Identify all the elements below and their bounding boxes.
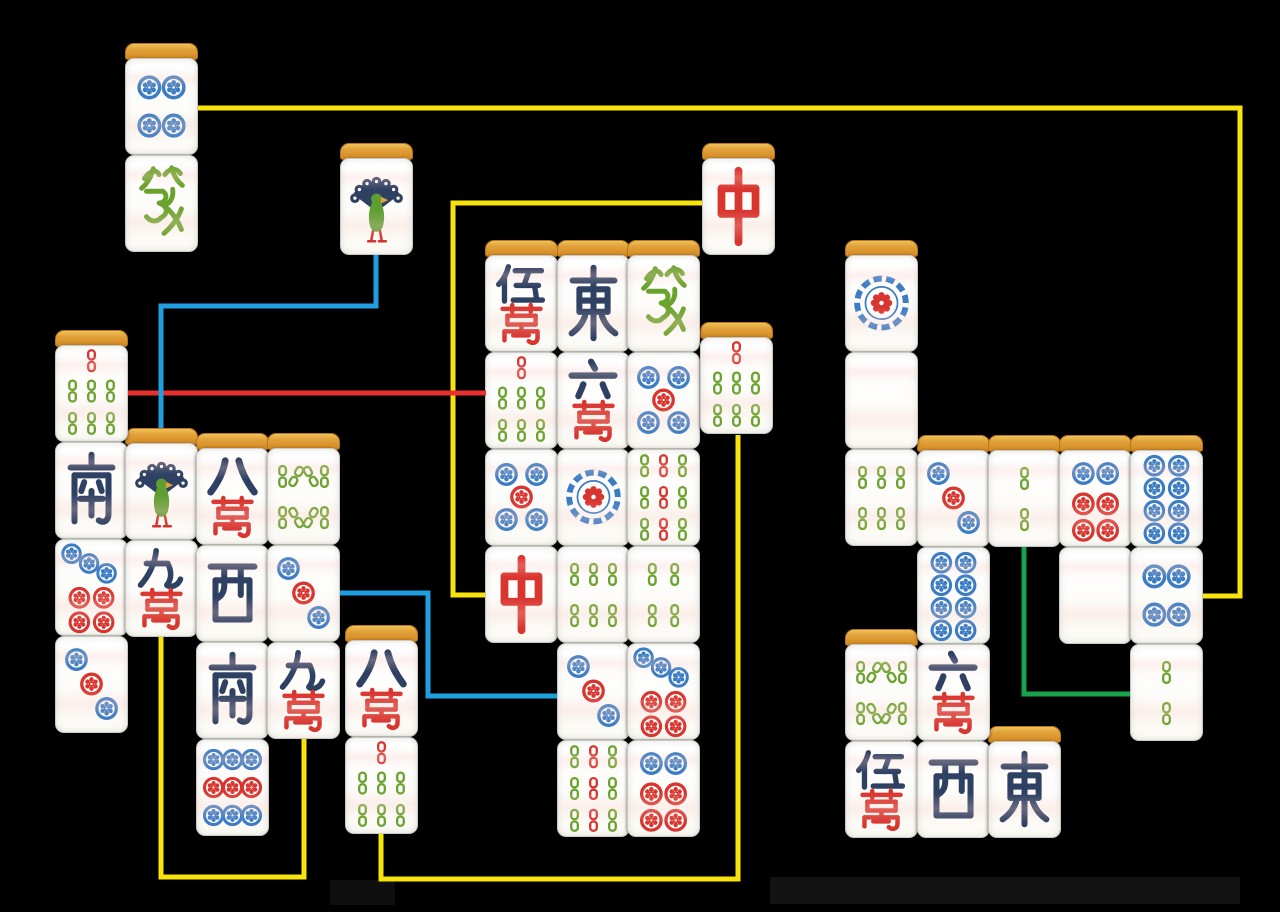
background-artifact bbox=[770, 877, 1240, 904]
pin-9-face-icon bbox=[197, 740, 268, 835]
west-wind-face-icon bbox=[918, 742, 989, 837]
tile-pin-4-50[interactable] bbox=[1130, 547, 1203, 644]
tile-sou-7-20[interactable] bbox=[485, 352, 558, 449]
tile-man-6-43[interactable] bbox=[917, 644, 990, 741]
man-5-face-icon bbox=[846, 742, 917, 837]
tile-pin-6-34[interactable] bbox=[627, 740, 700, 837]
west-wind-face-icon bbox=[197, 546, 268, 641]
sou-1-face-icon bbox=[341, 159, 412, 254]
blank-face-icon bbox=[1060, 548, 1131, 643]
sou-6-face-icon bbox=[558, 547, 629, 642]
south-wind-face-icon bbox=[197, 643, 268, 738]
tile-sou-9-28[interactable] bbox=[557, 740, 630, 837]
tile-red-dragon-22[interactable] bbox=[485, 546, 558, 643]
tile-pin-3-27[interactable] bbox=[557, 643, 630, 740]
pin-4-face-icon bbox=[1131, 548, 1202, 643]
tile-pin-1-36[interactable] bbox=[845, 255, 918, 352]
pin-8-face-icon bbox=[918, 548, 989, 643]
south-wind-face-icon bbox=[56, 443, 127, 538]
match-line-sou1 bbox=[161, 255, 376, 428]
pin-3-face-icon bbox=[56, 637, 127, 732]
sou-8-face-icon bbox=[268, 449, 339, 544]
tile-sou-7-4[interactable] bbox=[55, 345, 128, 442]
tile-east-wind-23[interactable] bbox=[557, 255, 630, 352]
pin-5-face-icon bbox=[486, 450, 557, 545]
pin-1-face-icon bbox=[846, 256, 917, 351]
tile-pin-3-41[interactable] bbox=[917, 450, 990, 547]
sou-8-face-icon bbox=[846, 645, 917, 740]
green-dragon-face-icon bbox=[628, 256, 699, 351]
tile-sou-1-2[interactable] bbox=[340, 158, 413, 255]
tile-man-6-24[interactable] bbox=[557, 352, 630, 449]
pin-3-face-icon bbox=[558, 644, 629, 739]
tile-man-9-16[interactable] bbox=[267, 642, 340, 739]
pin-7-face-icon bbox=[56, 540, 127, 635]
east-wind-face-icon bbox=[989, 742, 1060, 837]
background-artifact bbox=[330, 880, 395, 905]
sou-7-face-icon bbox=[56, 346, 127, 441]
tile-pin-3-7[interactable] bbox=[55, 636, 128, 733]
man-9-face-icon bbox=[268, 643, 339, 738]
sou-2-face-icon bbox=[989, 451, 1060, 546]
tile-pin-7-33[interactable] bbox=[627, 643, 700, 740]
man-6-face-icon bbox=[918, 645, 989, 740]
red-dragon-face-icon bbox=[486, 547, 557, 642]
tile-blank-48[interactable] bbox=[1059, 547, 1132, 644]
sou-7-face-icon bbox=[486, 353, 557, 448]
sou-9-face-icon bbox=[558, 741, 629, 836]
tile-blank-37[interactable] bbox=[845, 352, 918, 449]
sou-1-face-icon bbox=[126, 444, 197, 539]
sou-6-face-icon bbox=[846, 450, 917, 545]
tile-red-dragon-3[interactable] bbox=[702, 158, 775, 255]
tile-sou-8-14[interactable] bbox=[267, 448, 340, 545]
pin-6-face-icon bbox=[628, 741, 699, 836]
tile-sou-8-39[interactable] bbox=[845, 644, 918, 741]
tile-west-wind-11[interactable] bbox=[196, 545, 269, 642]
tile-sou-6-26[interactable] bbox=[557, 546, 630, 643]
pin-5-face-icon bbox=[628, 353, 699, 448]
tile-green-dragon-29[interactable] bbox=[627, 255, 700, 352]
tile-man-9-9[interactable] bbox=[125, 540, 198, 637]
tile-sou-9-31[interactable] bbox=[627, 449, 700, 546]
tile-man-5-40[interactable] bbox=[845, 741, 918, 838]
pin-3-face-icon bbox=[918, 451, 989, 546]
tile-pin-8-42[interactable] bbox=[917, 547, 990, 644]
sou-7-face-icon bbox=[346, 738, 417, 833]
tile-sou-4-32[interactable] bbox=[627, 546, 700, 643]
tile-pin-4-0[interactable] bbox=[125, 58, 198, 155]
pin-4-face-icon bbox=[126, 59, 197, 154]
pin-6-face-icon bbox=[1060, 451, 1131, 546]
tile-sou-2-51[interactable] bbox=[1130, 644, 1203, 741]
tile-east-wind-46[interactable] bbox=[988, 741, 1061, 838]
man-5-face-icon bbox=[486, 256, 557, 351]
sou-4-face-icon bbox=[628, 547, 699, 642]
pin-3-face-icon bbox=[268, 546, 339, 641]
tile-sou-7-18[interactable] bbox=[345, 737, 418, 834]
game-board bbox=[0, 0, 1280, 912]
tile-sou-7-35[interactable] bbox=[700, 337, 773, 434]
sou-9-face-icon bbox=[628, 450, 699, 545]
blank-face-icon bbox=[846, 353, 917, 448]
tile-man-8-10[interactable] bbox=[196, 448, 269, 545]
tile-pin-5-30[interactable] bbox=[627, 352, 700, 449]
tile-south-wind-5[interactable] bbox=[55, 442, 128, 539]
green-dragon-face-icon bbox=[126, 156, 197, 251]
tile-pin-5-21[interactable] bbox=[485, 449, 558, 546]
red-dragon-face-icon bbox=[703, 159, 774, 254]
tile-south-wind-12[interactable] bbox=[196, 642, 269, 739]
man-9-face-icon bbox=[126, 541, 197, 636]
tile-pin-6-47[interactable] bbox=[1059, 450, 1132, 547]
tile-sou-6-38[interactable] bbox=[845, 449, 918, 546]
tile-west-wind-44[interactable] bbox=[917, 741, 990, 838]
tile-green-dragon-1[interactable] bbox=[125, 155, 198, 252]
east-wind-face-icon bbox=[558, 256, 629, 351]
pin-7-face-icon bbox=[628, 644, 699, 739]
pin-1-face-icon bbox=[558, 450, 629, 545]
tile-pin-3-15[interactable] bbox=[267, 545, 340, 642]
man-8-face-icon bbox=[197, 449, 268, 544]
sou-2-face-icon bbox=[1131, 645, 1202, 740]
tile-man-5-19[interactable] bbox=[485, 255, 558, 352]
man-8-face-icon bbox=[346, 641, 417, 736]
sou-7-face-icon bbox=[701, 338, 772, 433]
tile-pin-7-6[interactable] bbox=[55, 539, 128, 636]
tile-pin-8-49[interactable] bbox=[1130, 450, 1203, 547]
tile-sou-1-8[interactable] bbox=[125, 443, 198, 540]
tile-man-8-17[interactable] bbox=[345, 640, 418, 737]
man-6-face-icon bbox=[558, 353, 629, 448]
tile-sou-2-45[interactable] bbox=[988, 450, 1061, 547]
tile-pin-1-25[interactable] bbox=[557, 449, 630, 546]
tile-pin-9-13[interactable] bbox=[196, 739, 269, 836]
pin-8-face-icon bbox=[1131, 451, 1202, 546]
